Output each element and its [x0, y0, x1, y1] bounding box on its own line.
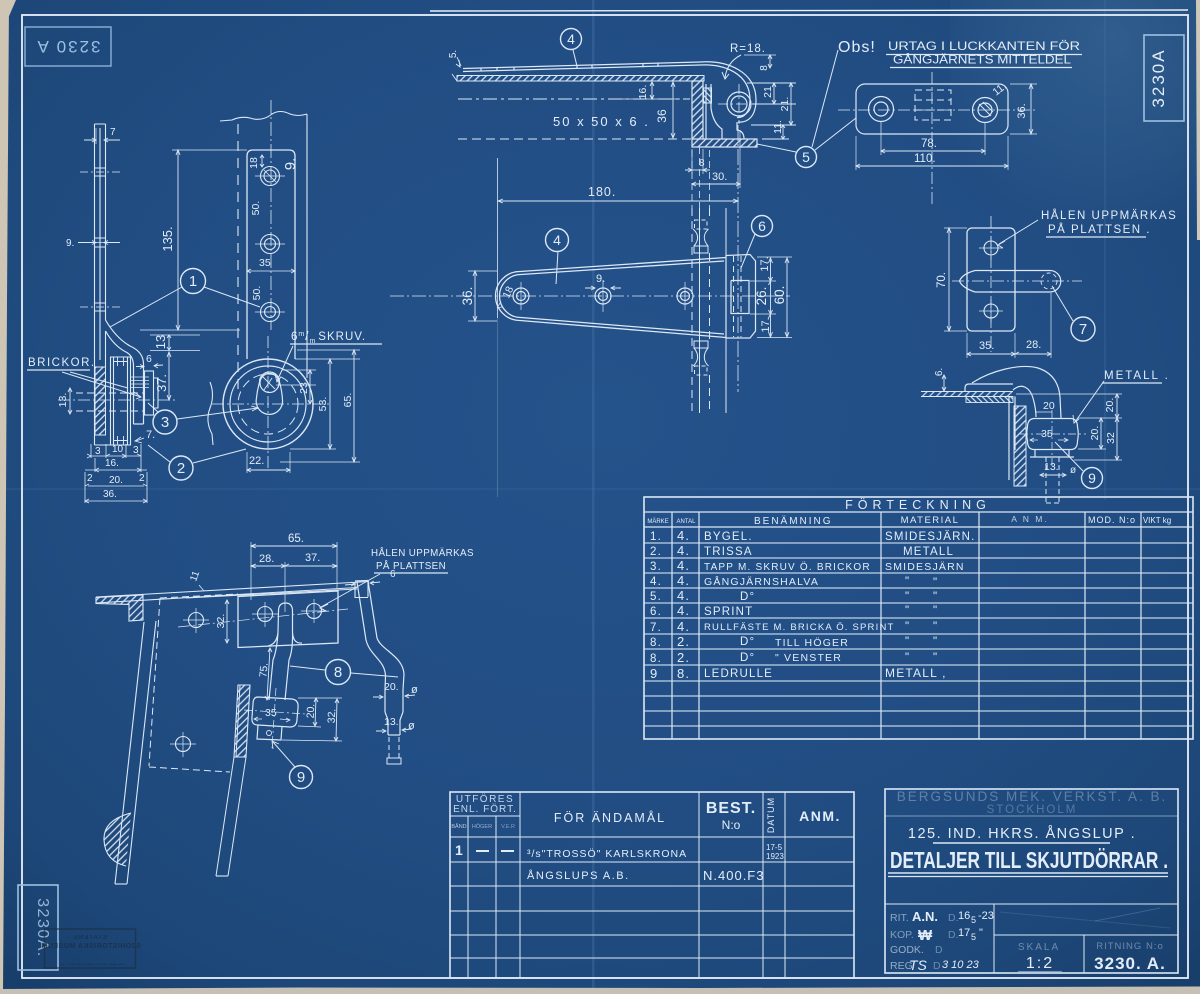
svg-text:28.: 28.	[1026, 339, 1041, 351]
svg-text:4: 4	[553, 232, 561, 248]
svg-text:5: 5	[971, 932, 976, 942]
svg-text:V.E.R: V.E.R	[501, 824, 515, 830]
svg-text:MATERIAL: MATERIAL	[901, 515, 960, 526]
svg-text:180.: 180.	[588, 185, 616, 199]
svg-text:": "	[905, 576, 910, 588]
svg-text:35.: 35.	[979, 340, 994, 352]
svg-text:TILL HÖGER: TILL HÖGER	[775, 637, 849, 649]
svg-text:22.: 22.	[249, 455, 264, 467]
svg-text:": "	[905, 652, 910, 664]
svg-text:37.: 37.	[305, 552, 320, 564]
svg-text:10: 10	[112, 444, 124, 455]
svg-text:HÅLEN UPPMÄRKAS: HÅLEN UPPMÄRKAS	[371, 548, 474, 559]
svg-text:16.: 16.	[637, 85, 649, 100]
svg-text:8: 8	[699, 158, 705, 169]
svg-text:••• •••• ••• ••• •••• ••• ••••: ••• •••• ••• ••• •••• ••• •••• • ••	[60, 962, 123, 967]
svg-text:1923: 1923	[766, 852, 784, 861]
svg-text:": "	[905, 605, 910, 617]
svg-text:DETALJER TILL SKJUTDÖRRAR .: DETALJER TILL SKJUTDÖRRAR .	[890, 847, 1168, 873]
svg-text:BÅND: BÅND	[451, 823, 466, 830]
svg-text:3: 3	[161, 414, 169, 431]
svg-text:60.: 60.	[772, 286, 787, 305]
svg-text:": "	[905, 636, 910, 648]
svg-text:³/s"TROSSÖ" KARLSKRONA: ³/s"TROSSÖ" KARLSKRONA	[527, 848, 687, 860]
svg-text:1:2: 1:2	[1026, 955, 1054, 972]
svg-text:8.: 8.	[650, 637, 662, 649]
svg-text:SMIDESJÄRN.: SMIDESJÄRN.	[885, 531, 976, 543]
svg-text:PÅ PLATTSEN .: PÅ PLATTSEN .	[1048, 223, 1151, 236]
svg-text:METALL .: METALL .	[1104, 370, 1170, 382]
svg-text:6: 6	[390, 569, 396, 580]
svg-text:8.: 8.	[677, 666, 690, 681]
svg-text:21: 21	[762, 86, 774, 98]
svg-text:2: 2	[139, 473, 145, 484]
svg-text:STOCKHOLM: STOCKHOLM	[987, 804, 1078, 816]
svg-text:DATUM: DATUM	[766, 797, 776, 833]
svg-text:9.: 9.	[282, 158, 299, 171]
svg-text:9: 9	[650, 666, 658, 681]
svg-text:2.: 2.	[650, 546, 662, 558]
svg-text:MOD. N:o: MOD. N:o	[1088, 515, 1136, 525]
svg-text:1: 1	[189, 273, 197, 290]
svg-text:D: D	[933, 960, 941, 972]
svg-text:9: 9	[297, 769, 305, 786]
svg-text:BERGSUNDS MEK. VERKST. A. B.: BERGSUNDS MEK. VERKST. A. B.	[897, 789, 1168, 804]
svg-text:FÖRTECKNING: FÖRTECKNING	[845, 498, 991, 512]
svg-text:SKALA: SKALA	[1018, 942, 1060, 953]
svg-text:RITNING N:o: RITNING N:o	[1096, 941, 1163, 952]
svg-text:": "	[933, 591, 938, 603]
svg-text:URTAG I LUCKKANTEN FÖR: URTAG I LUCKKANTEN FÖR	[888, 41, 1080, 53]
svg-text:3.: 3.	[650, 561, 662, 573]
svg-text:32.: 32.	[215, 614, 227, 629]
svg-text:": "	[933, 621, 938, 633]
svg-text:35: 35	[259, 257, 271, 269]
svg-text:20.: 20.	[109, 475, 123, 486]
svg-text:30.: 30.	[712, 171, 727, 183]
svg-text:13.: 13.	[1044, 461, 1059, 473]
svg-text:1.: 1.	[650, 531, 662, 543]
svg-text:4.: 4.	[677, 588, 690, 603]
svg-text:3230. A.: 3230. A.	[1094, 954, 1166, 973]
svg-text:20.: 20.	[1104, 398, 1116, 413]
svg-text:SJÖHISTORISKA MUSEUM: SJÖHISTORISKA MUSEUM	[41, 941, 141, 950]
svg-text:2: 2	[87, 473, 93, 484]
svg-text:18: 18	[248, 157, 260, 169]
svg-text:4: 4	[567, 31, 575, 47]
svg-text:7: 7	[110, 127, 116, 138]
svg-text:5: 5	[802, 149, 810, 165]
svg-text:4.: 4.	[677, 603, 690, 618]
svg-text:GODK.: GODK.	[890, 944, 924, 956]
svg-text:D°: D°	[740, 652, 755, 664]
svg-text:17-5: 17-5	[766, 843, 783, 852]
svg-text:-23: -23	[978, 910, 994, 922]
svg-text:2.: 2.	[677, 650, 690, 665]
svg-text:8: 8	[334, 664, 342, 681]
svg-text:BENÄMNING: BENÄMNING	[754, 515, 833, 527]
svg-text:7.: 7.	[650, 622, 662, 634]
svg-text:23: 23	[298, 382, 310, 394]
svg-text:26.: 26.	[754, 287, 769, 306]
svg-text:": "	[905, 621, 910, 633]
svg-text:16.: 16.	[105, 458, 119, 469]
svg-text:1: 1	[455, 842, 463, 858]
svg-text:MÄRKE: MÄRKE	[647, 518, 668, 525]
svg-text:ø: ø	[408, 720, 415, 732]
svg-text:": "	[905, 591, 910, 603]
svg-text:4.: 4.	[677, 543, 690, 558]
svg-text:4.: 4.	[650, 576, 662, 588]
svg-text:LEDRULLE: LEDRULLE	[704, 668, 773, 680]
svg-text:13.: 13.	[384, 716, 399, 728]
svg-text:": "	[933, 636, 938, 648]
svg-text:ø: ø	[411, 684, 418, 696]
svg-text:9.: 9.	[596, 273, 605, 285]
svg-text:4.: 4.	[677, 528, 690, 543]
svg-text:KOP.: KOP.	[890, 929, 914, 941]
svg-text:17: 17	[958, 927, 970, 939]
svg-text:135.: 135.	[160, 226, 175, 251]
svg-text:20.: 20.	[1089, 426, 1101, 441]
svg-text:TAPP M. SKRUV Ö. BRICKOR: TAPP M. SKRUV Ö. BRICKOR	[704, 561, 871, 573]
svg-text:2.: 2.	[677, 634, 690, 649]
svg-text:78.: 78.	[921, 138, 937, 150]
svg-text:": "	[979, 927, 983, 939]
svg-text:36.: 36.	[460, 287, 475, 306]
svg-text:": "	[933, 577, 938, 589]
svg-text:VIKT kg: VIKT kg	[1143, 516, 1171, 525]
svg-text:" VENSTER: " VENSTER	[775, 652, 842, 664]
svg-text:ø: ø	[1070, 465, 1076, 476]
svg-text:17.: 17.	[759, 256, 771, 271]
svg-text:4.: 4.	[677, 619, 690, 634]
svg-text:50.: 50.	[250, 201, 262, 216]
svg-text:N.400.F3: N.400.F3	[703, 868, 764, 883]
svg-text:7: 7	[1079, 321, 1087, 338]
svg-text:HÖGER: HÖGER	[472, 823, 492, 830]
svg-text:ÅNGSLUPS A.B.: ÅNGSLUPS A.B.	[527, 869, 630, 882]
svg-text:D: D	[935, 944, 943, 956]
svg-text:3230A: 3230A	[1149, 48, 1168, 107]
svg-text:6.: 6.	[934, 368, 945, 376]
svg-text:20.: 20.	[384, 681, 399, 693]
svg-text:37.: 37.	[154, 374, 169, 392]
svg-text:ANTAL: ANTAL	[677, 519, 697, 525]
svg-text:N:o: N:o	[722, 818, 741, 832]
svg-text:70.: 70.	[936, 272, 948, 288]
svg-text:36.: 36.	[103, 489, 117, 500]
svg-text:65.: 65.	[288, 533, 304, 545]
svg-text:3 10 23: 3 10 23	[942, 959, 980, 971]
svg-text:A.N.: A.N.	[912, 909, 938, 924]
svg-text:6: 6	[758, 218, 766, 234]
svg-text:6.: 6.	[650, 606, 662, 618]
svg-text:35: 35	[265, 707, 277, 719]
svg-text:35: 35	[1041, 428, 1053, 440]
svg-text:GÅNGJÄRNSHALVA: GÅNGJÄRNSHALVA	[704, 575, 819, 588]
svg-text:D°: D°	[740, 591, 755, 603]
svg-text:3230 A: 3230 A	[36, 37, 101, 56]
svg-text:STATENS: STATENS	[73, 935, 107, 941]
svg-text:32: 32	[1105, 432, 1117, 444]
svg-text:7.: 7.	[146, 429, 155, 441]
svg-text:65.: 65.	[342, 393, 354, 408]
svg-text:53.: 53.	[317, 397, 329, 412]
svg-text:28.: 28.	[259, 553, 274, 565]
svg-text:BYGEL.: BYGEL.	[704, 531, 753, 543]
svg-text:4.: 4.	[677, 558, 690, 573]
svg-text:ANM.: ANM.	[799, 808, 841, 824]
svg-text:36: 36	[655, 109, 669, 123]
svg-text:BEST.: BEST.	[706, 800, 756, 817]
svg-text:6: 6	[146, 353, 152, 365]
svg-text:D°: D°	[740, 636, 755, 648]
svg-text:9.: 9.	[66, 238, 74, 249]
svg-text:": "	[933, 652, 938, 664]
svg-text:TS: TS	[909, 957, 928, 973]
svg-text:50 x 50 x 6 .: 50 x 50 x 6 .	[553, 114, 650, 129]
svg-text:HÅLEN UPPMÄRKAS: HÅLEN UPPMÄRKAS	[1041, 209, 1177, 222]
svg-text:PÅ PLATTSEN: PÅ PLATTSEN	[376, 561, 446, 572]
svg-text:2: 2	[177, 460, 185, 477]
svg-text:D.: D.	[948, 912, 959, 924]
svg-text:36.: 36.	[1016, 103, 1028, 118]
svg-text:GÅNGJÄRNETS MITTELDEL: GÅNGJÄRNETS MITTELDEL	[893, 54, 1072, 67]
svg-text:125. IND. HKRS. ÅNGSLUP .: 125. IND. HKRS. ÅNGSLUP .	[908, 825, 1136, 842]
svg-text:5: 5	[971, 915, 976, 925]
svg-text:Obs!: Obs!	[838, 39, 876, 56]
svg-text:13.: 13.	[57, 393, 69, 408]
svg-text:FÖR ÄNDAMÅL: FÖR ÄNDAMÅL	[554, 810, 666, 825]
svg-text:3: 3	[95, 446, 101, 457]
svg-text:D.: D.	[948, 929, 959, 941]
svg-text:₩: ₩	[918, 927, 933, 944]
svg-text:TRISSA: TRISSA	[704, 546, 753, 558]
svg-text:A N M.: A N M.	[1011, 514, 1049, 524]
svg-text:METALL: METALL	[903, 546, 954, 558]
svg-text:R=18.: R=18.	[730, 43, 766, 55]
svg-text:13: 13	[153, 335, 168, 349]
svg-text:5.: 5.	[650, 591, 662, 603]
svg-text:RIT.: RIT.	[890, 912, 909, 924]
svg-text:METALL ,: METALL ,	[885, 666, 947, 680]
svg-text:8.: 8.	[650, 653, 662, 665]
svg-text:": "	[933, 605, 938, 617]
svg-text:4.: 4.	[677, 573, 690, 588]
svg-text:50.: 50.	[251, 286, 263, 301]
svg-text:SPRINT: SPRINT	[704, 606, 753, 618]
svg-text:16: 16	[958, 910, 970, 922]
svg-text:SMIDESJÄRN: SMIDESJÄRN	[885, 561, 965, 573]
svg-text:BRICKOR.: BRICKOR.	[28, 357, 96, 369]
svg-text:9: 9	[1088, 470, 1096, 486]
svg-text:ENL. FÖRT.: ENL. FÖRT.	[453, 803, 517, 815]
svg-text:110.: 110.	[914, 153, 936, 165]
svg-text:RULLFÄSTE M. BRICKA Ö. SPRINT: RULLFÄSTE M. BRICKA Ö. SPRINT	[704, 622, 895, 633]
svg-text:20: 20	[1043, 400, 1055, 412]
